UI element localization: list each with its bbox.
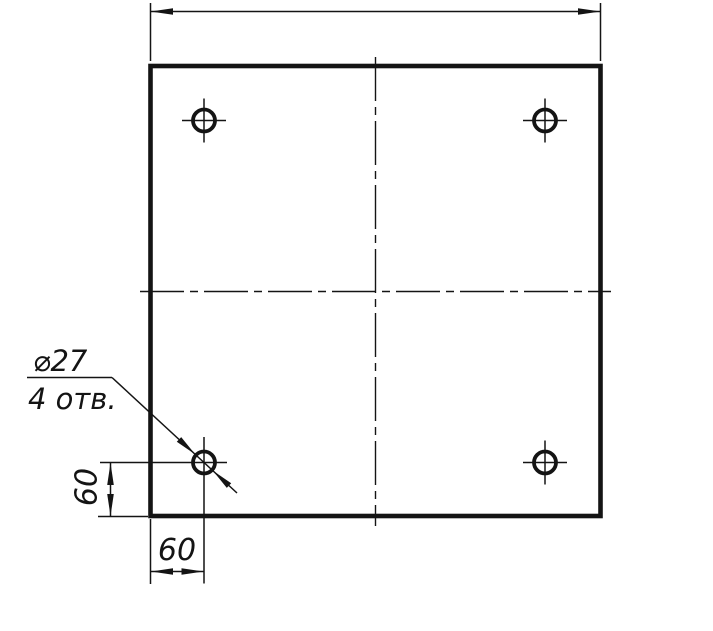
hole-callout: ⌀27 4 отв. [27, 344, 237, 493]
hole-top-right [523, 99, 567, 143]
dim-h60-arrow-right [182, 568, 204, 575]
dim-h60-value: 60 [158, 533, 196, 568]
dim-v60-arrow-bottom [107, 494, 114, 516]
top-dimension [151, 3, 601, 61]
callout-count-text: 4 отв. [28, 382, 117, 416]
callout-arrow-lower [213, 471, 231, 488]
callout-arrow-upper [177, 437, 195, 454]
top-dim-arrow-right [578, 8, 601, 14]
dim-v60-value: 60 [70, 468, 105, 506]
dim-h60-arrow-left [151, 568, 173, 575]
dim-horizontal-60: 60 [151, 519, 205, 584]
drawing-canvas: ⌀27 4 отв. 60 60 [0, 0, 713, 631]
dim-vertical-60: 60 [70, 463, 149, 517]
top-dim-arrow-left [151, 8, 174, 14]
drawing-sheet: ⌀27 4 отв. 60 60 [0, 0, 713, 631]
callout-diameter-text: ⌀27 [33, 344, 88, 378]
hole-top-left [182, 99, 226, 143]
dim-v60-arrow-top [107, 463, 114, 485]
hole-bottom-right [523, 441, 567, 485]
